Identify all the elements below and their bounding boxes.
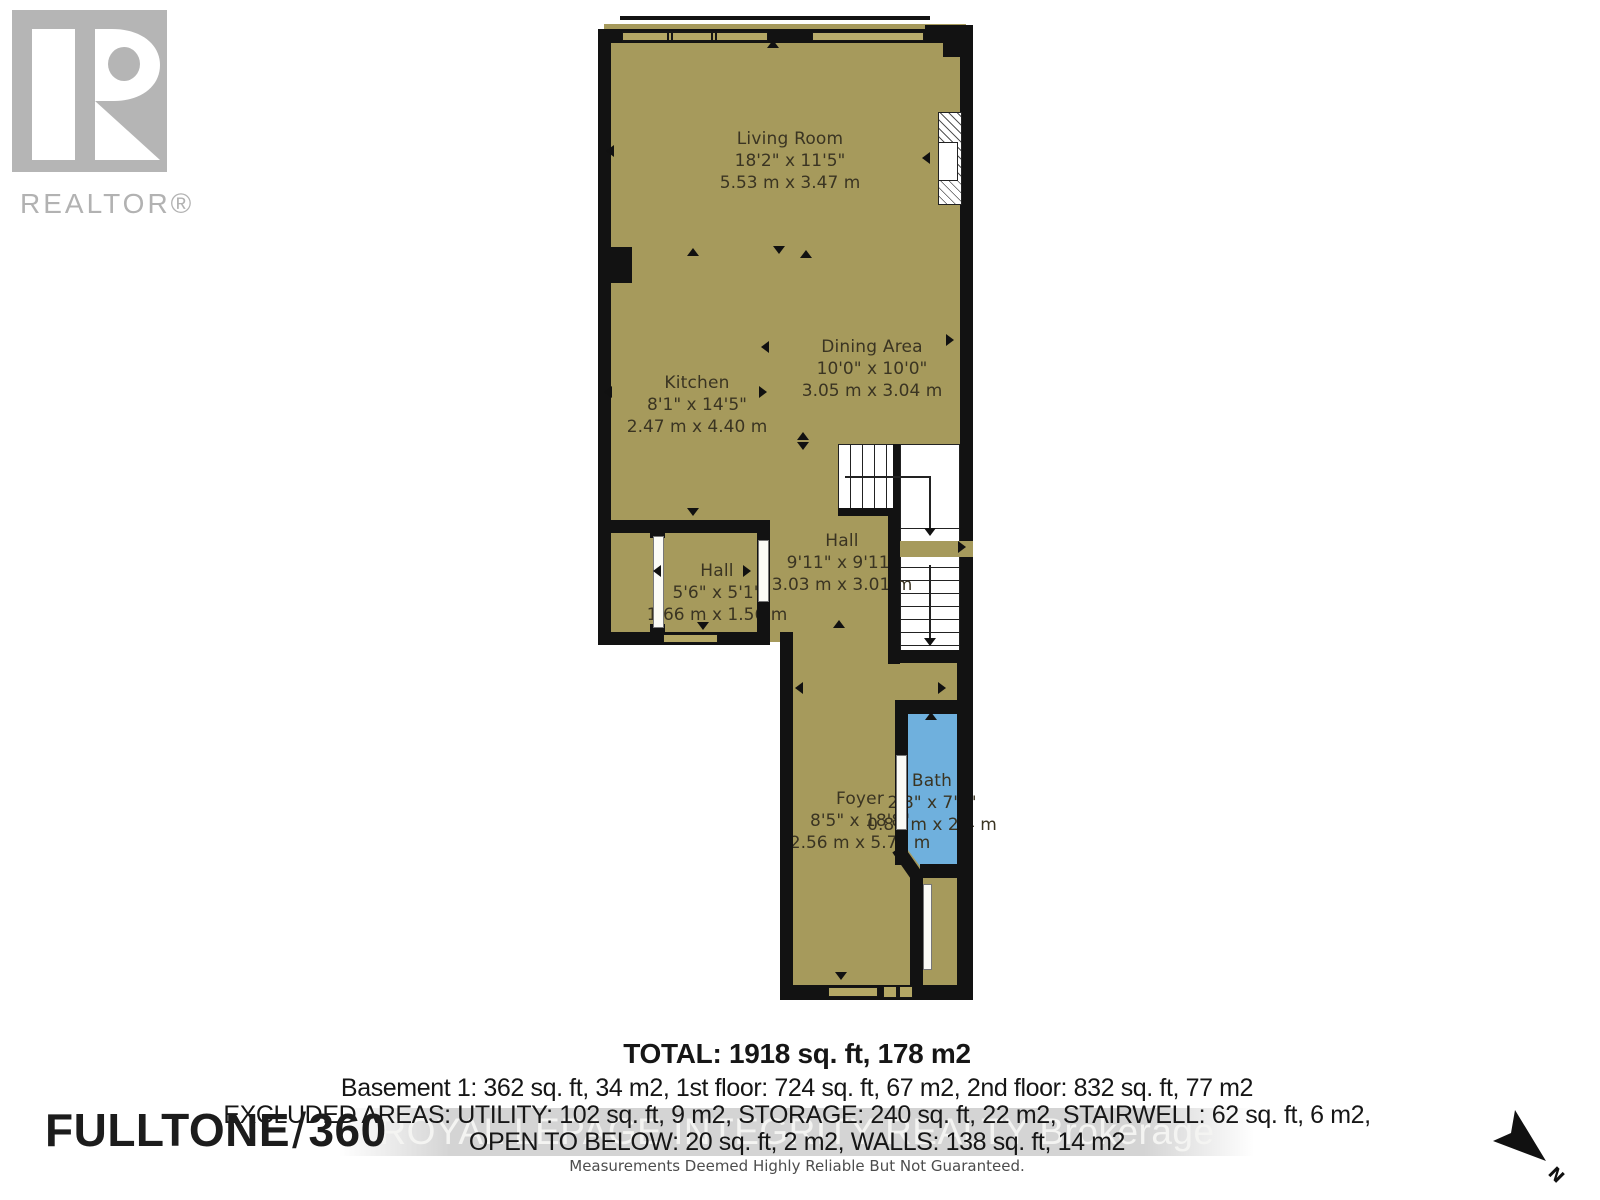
disclaimer: Measurements Deemed Highly Reliable But … <box>569 1157 1025 1175</box>
wall-below-bath <box>910 870 923 990</box>
wall-left-protrusion <box>598 247 632 283</box>
door-arrow <box>938 682 946 694</box>
window-mullion <box>711 33 717 40</box>
door-sill-entry <box>828 987 878 997</box>
wall-kitchen-hall-divider <box>598 520 770 533</box>
realtor-logo-icon <box>12 10 167 172</box>
porch-edge-line <box>620 16 930 20</box>
floor-areas: Basement 1: 362 sq. ft, 34 m2, 1st floor… <box>223 1075 1370 1102</box>
fulltone-slash: / <box>290 1103 308 1159</box>
excluded-areas: EXCLUDED AREAS: UTILITY: 102 sq. ft, 9 m… <box>223 1102 1370 1129</box>
room-label-living-room: Living Room 18'2" x 11'5" 5.53 m x 3.47 … <box>720 128 861 194</box>
door-arrow <box>800 250 812 258</box>
stair-runner-horizontal <box>845 476 931 478</box>
svg-text:N: N <box>1544 1163 1568 1187</box>
window-living-room <box>622 31 768 42</box>
door-arrow <box>653 565 661 577</box>
wall-foyer-left <box>780 632 793 1000</box>
door-arrow <box>606 145 614 157</box>
stair-marker-up <box>797 432 809 440</box>
door-arrow <box>687 248 699 256</box>
door-arrow <box>697 622 709 630</box>
window-mullion <box>667 33 673 40</box>
firebox <box>938 142 958 181</box>
opening-top <box>812 32 924 41</box>
door-arrow <box>833 620 845 628</box>
area-summary: TOTAL: 1918 sq. ft, 178 m2 Basement 1: 3… <box>223 1038 1370 1156</box>
stair-down-arrow <box>924 528 936 536</box>
door-arrow <box>604 386 612 398</box>
door-arrow <box>928 864 940 872</box>
room-label-kitchen: Kitchen 8'1" x 14'5" 2.47 m x 4.40 m <box>627 372 768 438</box>
door-arrow <box>743 565 751 577</box>
stair-marker-down <box>797 442 809 450</box>
door-bath <box>896 755 907 830</box>
door-arrow <box>687 508 699 516</box>
fireplace-icon <box>938 112 962 205</box>
floorplan-page: REALTOR® <box>0 0 1600 1200</box>
total-area: TOTAL: 1918 sq. ft, 178 m2 <box>223 1038 1370 1070</box>
fireplace-arrow <box>922 152 930 164</box>
door-arrow <box>767 40 779 48</box>
wall-stairwell-left <box>888 514 900 664</box>
wall-left <box>598 29 611 645</box>
door-sill-smallhall <box>663 634 718 643</box>
door-arrow <box>795 682 803 694</box>
door-smallhall-right <box>758 540 769 602</box>
window-mullion <box>896 987 900 997</box>
door-arrow <box>925 712 937 720</box>
stair-down-arrow <box>924 638 936 646</box>
landing-door-arrow <box>958 541 966 553</box>
room-label-dining-area: Dining Area 10'0" x 10'0" 3.05 m x 3.04 … <box>802 336 943 402</box>
door-arrow <box>759 386 767 398</box>
wall-stairs-vertical <box>893 444 900 514</box>
open-below-walls: OPEN TO BELOW: 20 sq. ft, 2 m2, WALLS: 1… <box>223 1129 1370 1156</box>
fulltone-360: 360 <box>308 1104 386 1156</box>
window-bottom <box>883 986 913 998</box>
realtor-wordmark: REALTOR® <box>20 188 200 220</box>
north-arrow-icon: N <box>1478 1093 1578 1188</box>
room-label-bath: Bath 2'8" x 7'1" 0.81 m x 2.4 m <box>867 770 997 836</box>
door-arrow <box>773 246 785 254</box>
fulltone-wordmark: FULLTONE <box>45 1104 290 1156</box>
door-arrow <box>835 972 847 980</box>
north-arrow: N <box>1478 1093 1578 1192</box>
door-arrow <box>946 334 954 346</box>
realtor-logo: REALTOR® <box>12 10 167 176</box>
stair-runner-vertical <box>929 476 931 530</box>
door-smallhall-left <box>653 536 664 628</box>
fulltone-360-logo: FULLTONE/360 <box>45 1102 387 1160</box>
stair-direction-line <box>929 565 931 640</box>
door-arrow <box>761 341 769 353</box>
door-closet <box>923 884 932 970</box>
wall-stairs-bottom <box>888 650 973 663</box>
